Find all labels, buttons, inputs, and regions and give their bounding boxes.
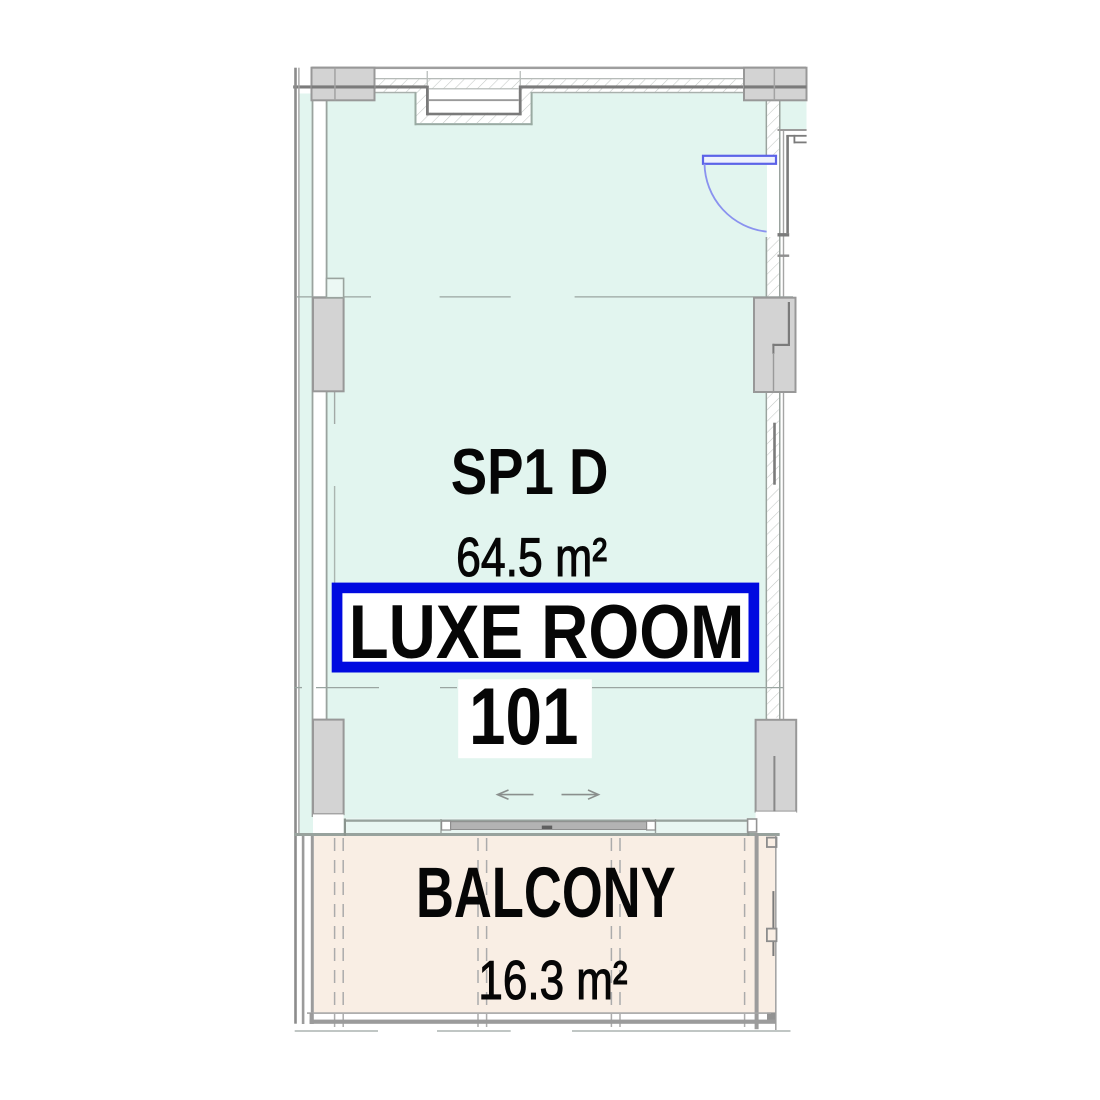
svg-text:64.5 m²: 64.5 m² xyxy=(456,527,607,589)
svg-text:16.3 m²: 16.3 m² xyxy=(478,949,627,1011)
svg-text:LUXE ROOM: LUXE ROOM xyxy=(349,590,745,675)
svg-text:101: 101 xyxy=(469,670,578,761)
svg-text:SP1 D: SP1 D xyxy=(451,435,609,508)
svg-text:BALCONY: BALCONY xyxy=(416,853,676,933)
